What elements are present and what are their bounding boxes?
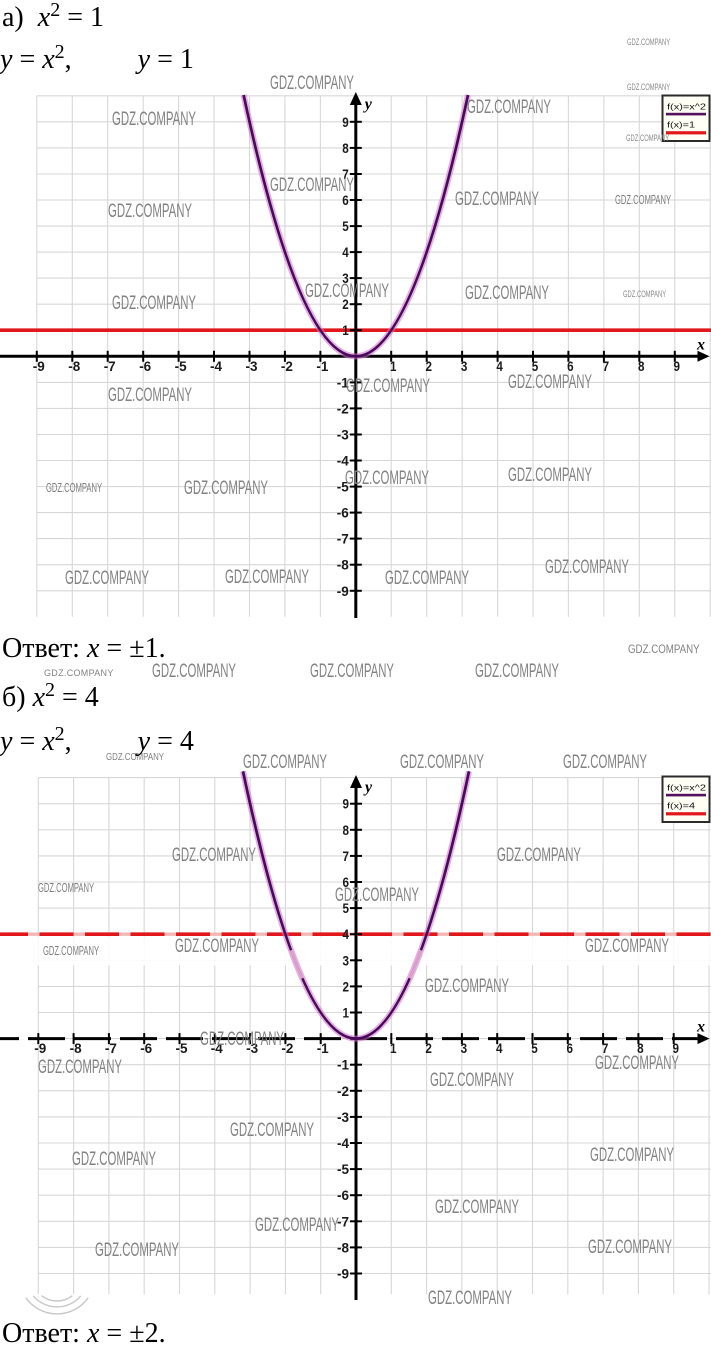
svg-text:8: 8 (342, 140, 349, 156)
svg-text:f(x)=4: f(x)=4 (667, 801, 696, 810)
svg-text:-5: -5 (175, 358, 187, 374)
svg-text:f(x)=1: f(x)=1 (667, 120, 696, 129)
svg-text:1: 1 (390, 1040, 397, 1056)
svg-text:3: 3 (343, 952, 350, 968)
svg-text:-7: -7 (337, 531, 349, 547)
svg-text:-3: -3 (337, 1109, 349, 1125)
svg-text:-7: -7 (104, 358, 116, 374)
svg-text:4: 4 (343, 926, 350, 942)
svg-text:4: 4 (342, 244, 349, 260)
svg-text:2: 2 (343, 978, 350, 994)
svg-text:2: 2 (425, 358, 432, 374)
svg-text:8: 8 (343, 822, 350, 838)
svg-text:-9: -9 (337, 583, 349, 599)
svg-text:y: y (363, 96, 373, 113)
svg-text:-4: -4 (337, 1135, 349, 1151)
svg-text:x: x (696, 1019, 705, 1036)
svg-text:f(x)=x^2: f(x)=x^2 (667, 784, 707, 793)
svg-text:5: 5 (342, 218, 349, 234)
svg-text:-6: -6 (337, 505, 349, 521)
svg-text:-3: -3 (246, 358, 258, 374)
svg-text:-9: -9 (34, 1040, 46, 1056)
svg-text:-2: -2 (337, 1083, 349, 1099)
svg-text:-9: -9 (337, 1266, 349, 1282)
svg-text:1: 1 (390, 358, 397, 374)
svg-text:7: 7 (603, 358, 610, 374)
svg-text:4: 4 (496, 1040, 503, 1056)
svg-text:-8: -8 (337, 557, 349, 573)
svg-text:x: x (696, 336, 705, 353)
svg-text:2: 2 (425, 1040, 432, 1056)
svg-text:9: 9 (343, 796, 350, 812)
svg-text:-3: -3 (337, 427, 349, 443)
svg-text:-6: -6 (337, 1187, 349, 1203)
svg-text:y: y (363, 779, 373, 796)
svg-text:-1: -1 (337, 1057, 349, 1073)
svg-text:-1: -1 (317, 1040, 329, 1056)
svg-text:1: 1 (342, 322, 349, 338)
svg-text:-8: -8 (337, 1239, 349, 1255)
svg-text:-8: -8 (68, 358, 80, 374)
svg-text:-5: -5 (176, 1040, 188, 1056)
svg-text:3: 3 (461, 358, 468, 374)
svg-text:4: 4 (496, 358, 503, 374)
svg-text:f(x)=x^2: f(x)=x^2 (667, 103, 707, 112)
svg-text:1: 1 (343, 1005, 350, 1021)
svg-text:-4: -4 (337, 453, 349, 469)
svg-text:-2: -2 (337, 400, 349, 416)
svg-text:9: 9 (342, 114, 349, 130)
svg-text:-6: -6 (140, 1040, 152, 1056)
svg-text:9: 9 (674, 358, 681, 374)
svg-text:-2: -2 (281, 358, 293, 374)
svg-text:-8: -8 (70, 1040, 82, 1056)
svg-text:-5: -5 (337, 1161, 349, 1177)
svg-text:-1: -1 (316, 358, 328, 374)
svg-text:6: 6 (567, 1040, 574, 1056)
svg-text:8: 8 (638, 358, 645, 374)
svg-text:3: 3 (461, 1040, 468, 1056)
svg-text:7: 7 (343, 848, 350, 864)
svg-text:-9: -9 (33, 358, 45, 374)
svg-text:-6: -6 (139, 358, 151, 374)
svg-text:-7: -7 (105, 1040, 117, 1056)
svg-text:-4: -4 (210, 358, 222, 374)
svg-text:5: 5 (531, 1040, 538, 1056)
